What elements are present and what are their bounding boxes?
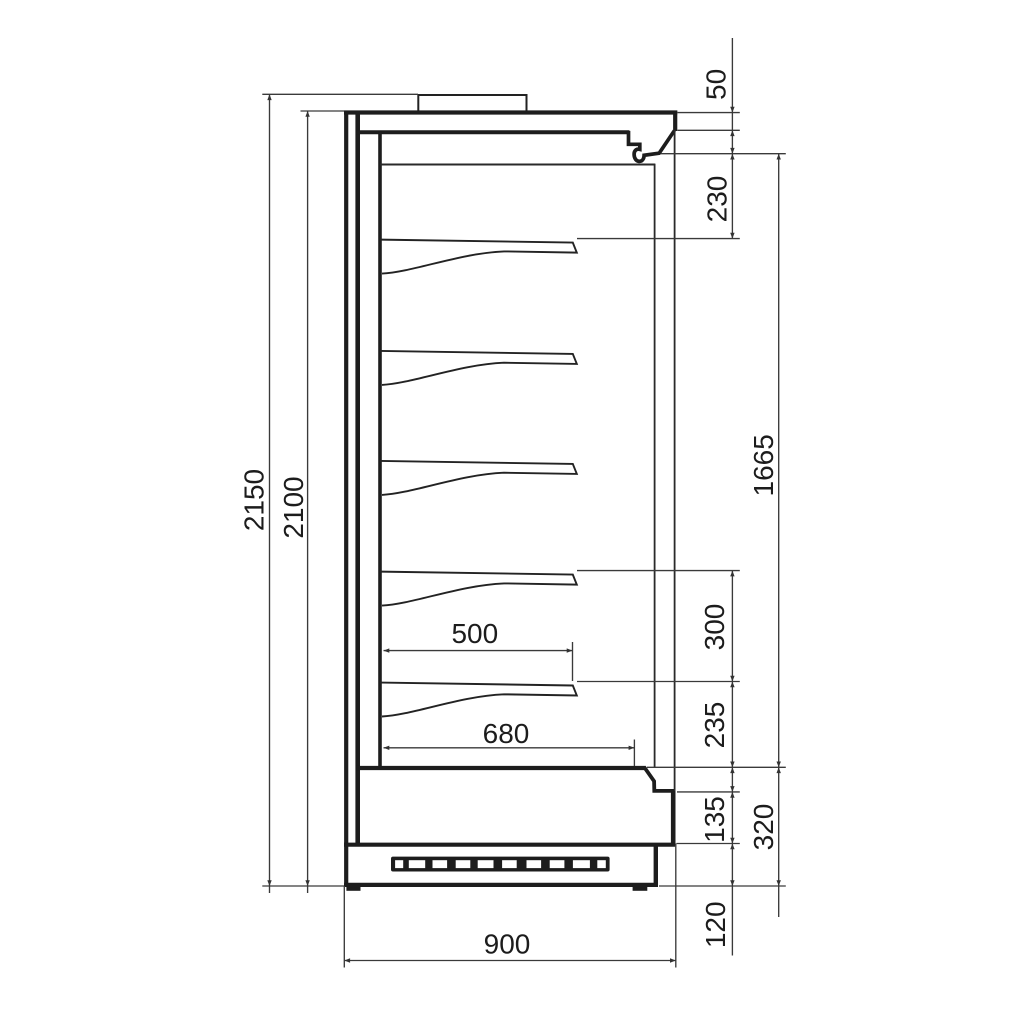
svg-text:120: 120 <box>700 901 731 948</box>
svg-text:235: 235 <box>699 702 730 749</box>
svg-text:2150: 2150 <box>239 469 270 531</box>
svg-text:50: 50 <box>701 69 732 100</box>
svg-text:680: 680 <box>483 718 530 749</box>
svg-text:900: 900 <box>484 929 531 960</box>
svg-text:230: 230 <box>702 176 733 223</box>
svg-text:135: 135 <box>699 796 730 843</box>
svg-text:1665: 1665 <box>748 434 779 496</box>
svg-text:500: 500 <box>451 618 498 649</box>
svg-text:2100: 2100 <box>278 476 309 538</box>
svg-text:320: 320 <box>748 804 779 851</box>
svg-text:300: 300 <box>699 604 730 651</box>
